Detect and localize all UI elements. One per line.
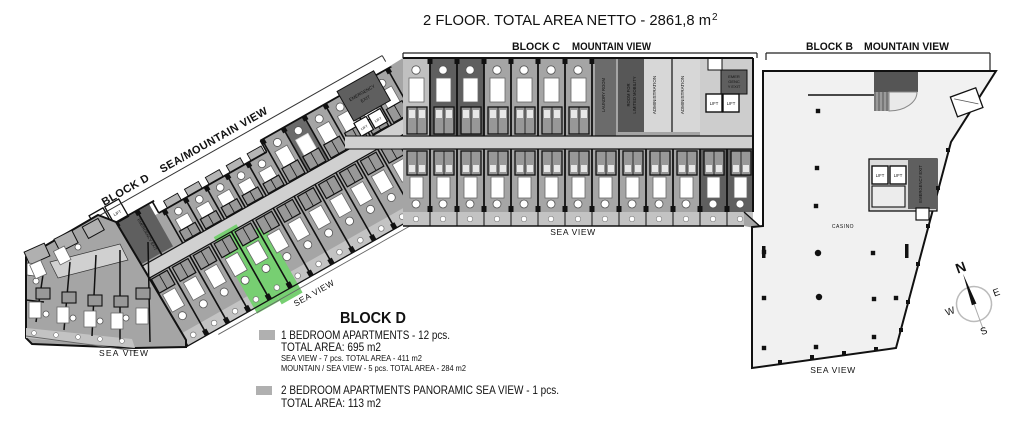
svg-text:LIMITED MOBILITY: LIMITED MOBILITY (632, 76, 637, 113)
svg-text:MOUNTAIN VIEW: MOUNTAIN VIEW (572, 41, 652, 53)
svg-text:BLOCK B: BLOCK B (806, 41, 853, 53)
svg-text:SEA VIEW: SEA VIEW (810, 365, 855, 375)
svg-text:ADMINISTRATION: ADMINISTRATION (680, 76, 685, 114)
svg-text:W: W (944, 305, 957, 319)
svg-text:2 FLOOR. TOTAL AREA NETTO - 28: 2 FLOOR. TOTAL AREA NETTO - 2861,8 m (423, 12, 711, 29)
svg-text:TOTAL AREA: 113 m2: TOTAL AREA: 113 m2 (281, 396, 381, 410)
svg-text:SEA VIEW - 7 pcs. TOTAL AREA -: SEA VIEW - 7 pcs. TOTAL AREA - 411 m2 (281, 353, 422, 363)
svg-text:LIFT: LIFT (894, 173, 903, 178)
svg-text:2 BEDROOM APARTMENTS PANORAMIC: 2 BEDROOM APARTMENTS PANORAMIC SEA VIEW … (281, 383, 559, 397)
svg-text:E: E (992, 287, 1002, 300)
svg-text:ADMINISTRATION: ADMINISTRATION (652, 76, 657, 114)
svg-text:TOTAL AREA: 695 m2: TOTAL AREA: 695 m2 (281, 340, 381, 354)
svg-text:N: N (953, 258, 968, 276)
svg-text:LIFT: LIFT (710, 101, 719, 106)
svg-text:CASINO: CASINO (832, 224, 854, 230)
svg-text:ROOM FOR: ROOM FOR (626, 83, 631, 106)
svg-text:2: 2 (712, 12, 718, 23)
svg-text:LIFT: LIFT (876, 173, 885, 178)
svg-text:BLOCK C: BLOCK C (512, 41, 560, 53)
svg-text:EMERGENCY EXIT: EMERGENCY EXIT (918, 165, 923, 203)
svg-text:MOUNTAIN VIEW: MOUNTAIN VIEW (864, 41, 950, 53)
svg-text:LAUNDRY ROOM: LAUNDRY ROOM (601, 77, 606, 112)
svg-text:LIFT: LIFT (727, 101, 736, 106)
svg-text:SEA VIEW: SEA VIEW (550, 227, 595, 237)
svg-text:MOUNTAIN / SEA VIEW - 5 pcs. T: MOUNTAIN / SEA VIEW - 5 pcs. TOTAL AREA … (281, 363, 466, 373)
svg-text:S: S (979, 325, 989, 338)
svg-text:BLOCK D: BLOCK D (340, 310, 406, 327)
svg-text:SEA VIEW: SEA VIEW (99, 348, 149, 358)
svg-text:Y EXIT: Y EXIT (728, 84, 741, 89)
